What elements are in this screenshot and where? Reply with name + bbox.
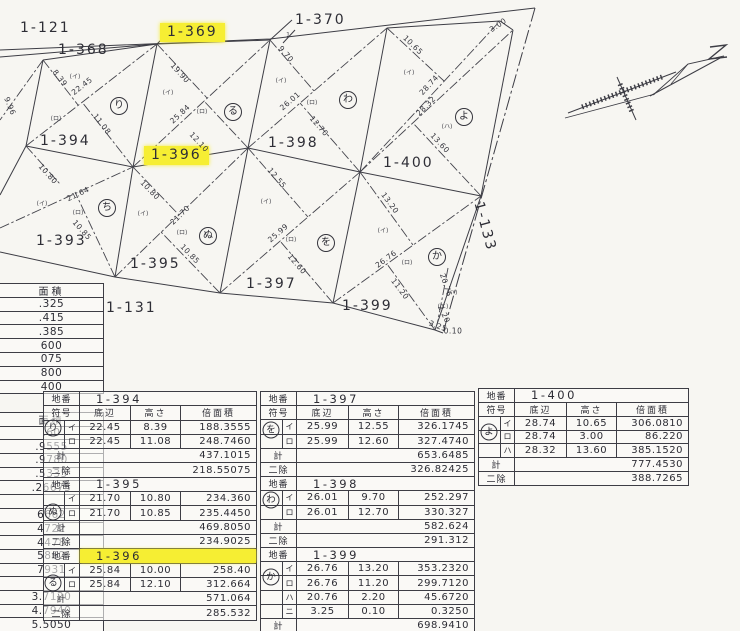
table-cell: ロ	[65, 506, 80, 519]
map-tri-mark: (ロ)	[286, 235, 297, 244]
table-cell: 3.00	[567, 431, 617, 444]
table-cell: 計	[44, 592, 80, 605]
table-parcel-symbol: か	[263, 569, 280, 586]
table-cell: 582.624	[297, 520, 474, 533]
area-table-fragment-1: 面積.325.415.385600075800400	[0, 283, 104, 394]
table-cell: 353.2320	[399, 562, 474, 575]
parcel-label: 1-370	[295, 12, 346, 28]
table-cell: 2.20	[349, 591, 399, 604]
table-row: 二除218.55075	[44, 463, 256, 477]
map-measurement: 9.70	[276, 44, 295, 64]
table-row: 符号底辺高さ倍面積	[479, 403, 688, 417]
table-cell	[261, 605, 283, 618]
parcel-label: 1-398	[268, 135, 319, 151]
map-measurement: 13.60	[429, 131, 452, 155]
table-row: 符号底辺高さ倍面積	[261, 406, 474, 420]
table-row: 地番1-395	[44, 478, 256, 492]
table-cell: 28.74	[515, 431, 567, 444]
table-cell: 地番	[261, 548, 297, 561]
parcel-label: 1-393	[36, 233, 87, 249]
table-cell: 299.7120	[399, 576, 474, 589]
map-measurement: 10.65	[401, 33, 425, 56]
table-cell: 285.532	[80, 606, 256, 619]
table-cell: 45.6720	[399, 591, 474, 604]
map-tri-mark: (イ)	[261, 197, 272, 206]
table-row: ロ25.9912.60327.4740	[261, 435, 474, 449]
parcel-label: 1-397	[246, 276, 297, 292]
map-measurement: 10.80	[138, 178, 161, 202]
map-measurement: 13.20	[379, 191, 400, 216]
table-parcel-symbol: わ	[263, 492, 280, 509]
fragment-value: .415	[0, 312, 103, 326]
table-row: 二除326.82425	[261, 463, 474, 477]
map-measurement: 26.01	[278, 90, 302, 113]
map-measurement: 11.08	[91, 112, 113, 136]
map-tri-mark: (ハ)	[447, 288, 458, 297]
table-row: 計437.1015	[44, 449, 256, 463]
table-cell: 28.74	[515, 417, 567, 430]
table-cell: 25.84	[80, 564, 131, 577]
map-tri-mark: 1	[286, 32, 290, 39]
table-cell: 地番	[44, 478, 80, 491]
table-cell: ロ	[501, 431, 515, 444]
table-cell: 1-397	[297, 392, 474, 405]
table-cell: 0.10	[349, 605, 399, 618]
map-parcel-symbol: よ	[455, 108, 473, 126]
table-cell: 高さ	[349, 406, 399, 419]
fragment-value: .385	[0, 325, 103, 339]
table-cell: ロ	[283, 576, 297, 589]
table-parcel-symbol: ぬ	[45, 504, 62, 521]
map-parcel-symbol: わ	[339, 91, 357, 109]
map-measurement: 3.00	[488, 16, 508, 34]
map-tri-mark: (ロ)	[51, 114, 62, 123]
map-tri-mark: (イ)	[70, 72, 81, 81]
measurement-table-2: 地番1-397符号底辺高さ倍面積イ25.9912.55326.1745ロ25.9…	[260, 391, 475, 631]
map-measurement: 25.84	[168, 103, 192, 126]
table-row: ロ25.8412.10312.664	[44, 578, 256, 592]
table-cell: 11.08	[131, 435, 181, 448]
table-cell: 25.99	[297, 420, 349, 433]
table-row: 地番1-398	[261, 477, 474, 491]
table-row: イ22.458.39188.3555	[44, 421, 256, 435]
table-cell: イ	[501, 417, 515, 430]
table-cell: 地番	[44, 392, 80, 405]
table-cell: 底辺	[297, 406, 349, 419]
table-cell: 25.84	[80, 578, 131, 591]
table-cell: 235.4450	[181, 506, 256, 519]
table-cell: 22.45	[80, 435, 131, 448]
table-cell: 底辺	[515, 403, 567, 416]
table-cell: 11.20	[349, 576, 399, 589]
map-tri-mark: (ロ)	[197, 107, 208, 116]
table-cell: 地番	[261, 392, 297, 405]
table-cell: 218.55075	[80, 463, 256, 476]
table-cell: 倍面積	[617, 403, 688, 416]
table-row: 二除388.7265	[479, 472, 688, 486]
map-measurement: 9.96	[2, 96, 17, 117]
table-cell: 二除	[261, 463, 297, 476]
table-cell: ハ	[283, 591, 297, 604]
map-measurement: 19.90	[169, 61, 192, 85]
table-cell: 二除	[44, 606, 80, 619]
table-cell: 306.0810	[617, 417, 688, 430]
table-cell: 20.76	[297, 591, 349, 604]
fragment-header: 面積	[0, 284, 103, 298]
table-cell: 13.20	[349, 562, 399, 575]
map-parcel-symbol: を	[317, 234, 335, 252]
map-tri-mark: (イ)	[163, 88, 174, 97]
table-cell: 底辺	[80, 406, 131, 419]
table-cell: 二除	[261, 534, 297, 547]
table-cell	[261, 591, 283, 604]
table-cell: 571.064	[80, 592, 256, 605]
table-cell: イ	[283, 562, 297, 575]
table-cell: 327.4740	[399, 435, 474, 448]
table-row: 計571.064	[44, 592, 256, 606]
table-cell: 9.70	[349, 491, 399, 504]
map-measurement: 0.10	[444, 327, 463, 336]
parcel-label: 1-395	[130, 256, 181, 272]
table-cell: 25.99	[297, 435, 349, 448]
table-row: 計653.6485	[261, 449, 474, 463]
map-measurement: 28.74	[418, 73, 441, 97]
table-cell: 10.00	[131, 564, 181, 577]
table-cell: 26.76	[297, 576, 349, 589]
table-parcel-symbol: り	[45, 420, 62, 437]
table-cell: 0.3250	[399, 605, 474, 618]
parcel-label: 1-400	[383, 155, 434, 171]
table-cell: 258.40	[181, 564, 256, 577]
table-row: 二除234.9025	[44, 535, 256, 549]
table-row: 地番1-400	[479, 389, 688, 403]
table-cell: 1-398	[297, 477, 474, 490]
scanned-survey-document: 1-1211-3681-3691-3701-3941-3961-3981-400…	[0, 0, 740, 631]
table-cell: 計	[479, 458, 515, 471]
table-cell: 12.70	[349, 506, 399, 519]
table-row: 符号底辺高さ倍面積	[44, 406, 256, 420]
table-cell: 高さ	[131, 406, 181, 419]
fragment-value: 800	[0, 367, 103, 381]
table-cell: 3.25	[297, 605, 349, 618]
table-row: 地番1-399	[261, 548, 474, 562]
table-cell: ロ	[283, 506, 297, 519]
table-cell: 高さ	[567, 403, 617, 416]
table-cell: 地番	[479, 389, 515, 402]
table-cell: 234.360	[181, 492, 256, 505]
table-cell: 777.4530	[515, 458, 688, 471]
table-row: 計698.9410	[261, 619, 474, 631]
table-cell: 13.60	[567, 444, 617, 457]
map-measurement: 21.70	[168, 203, 192, 226]
table-row: ロ26.7611.20299.7120	[261, 576, 474, 590]
table-cell: 二除	[44, 535, 80, 548]
table-cell: 330.327	[399, 506, 474, 519]
measurement-table-1: 地番1-394符号底辺高さ倍面積イ22.458.39188.3555ロ22.45…	[43, 391, 257, 621]
table-row: 二除291.312	[261, 534, 474, 548]
table-cell: 二除	[44, 463, 80, 476]
table-cell: 437.1015	[80, 449, 256, 462]
table-row: 地番1-397	[261, 392, 474, 406]
map-measurement: 21.64	[65, 185, 91, 203]
table-cell: 312.664	[181, 578, 256, 591]
map-measurement: 12.60	[286, 252, 309, 276]
map-parcel-symbol: る	[224, 103, 242, 121]
table-cell: 469.8050	[80, 521, 256, 534]
table-cell	[479, 444, 501, 457]
table-cell: 653.6485	[297, 449, 474, 462]
map-measurement: 8.39	[51, 68, 70, 88]
fragment-value: .325	[0, 298, 103, 312]
map-tri-mark: (イ)	[37, 199, 48, 208]
table-cell: 地番	[261, 477, 297, 490]
map-parcel-symbol: か	[428, 248, 446, 266]
table-cell: 21.70	[80, 492, 131, 505]
table-cell: ロ	[65, 578, 80, 591]
map-tri-mark: (ロ)	[177, 228, 188, 237]
parcel-label: 1-369	[160, 23, 225, 42]
table-cell: イ	[65, 564, 80, 577]
map-tri-mark: (ロ)	[307, 98, 318, 107]
table-cell: 10.85	[131, 506, 181, 519]
table-cell: 符号	[479, 403, 515, 416]
table-row: イ26.7613.20353.2320	[261, 562, 474, 576]
table-row: ロ28.743.0086.220	[479, 431, 688, 445]
table-cell: 86.220	[617, 431, 688, 444]
table-row: イ25.8410.00258.40	[44, 564, 256, 578]
table-cell: 326.82425	[297, 463, 474, 476]
map-tri-mark: (ニ)	[438, 302, 449, 311]
table-cell: 8.39	[131, 421, 181, 434]
map-measurement: 12.55	[266, 166, 288, 190]
parcel-label: 1-121	[20, 20, 71, 36]
table-cell: 385.1520	[617, 444, 688, 457]
table-cell: 12.55	[349, 420, 399, 433]
table-cell: 1-395	[80, 478, 256, 491]
table-cell	[44, 435, 65, 448]
parcel-label: 1-368	[58, 42, 109, 58]
table-row: イ26.019.70252.297	[261, 491, 474, 505]
table-cell: 698.9410	[297, 619, 474, 631]
fragment-value: 075	[0, 353, 103, 367]
table-cell: ロ	[283, 435, 297, 448]
map-measurement: 26.76	[374, 248, 399, 269]
table-row: 地番1-396	[44, 549, 256, 563]
table-row: 計777.4530	[479, 458, 688, 472]
table-cell: 10.65	[567, 417, 617, 430]
map-tri-mark: (ロ)	[73, 208, 84, 217]
table-cell: 符号	[261, 406, 297, 419]
measurement-table-3: 地番1-400符号底辺高さ倍面積イ28.7410.65306.0810ロ28.7…	[478, 388, 689, 486]
table-cell: 388.7265	[515, 472, 688, 485]
table-cell: イ	[65, 421, 80, 434]
table-cell: 倍面積	[399, 406, 474, 419]
table-cell: 倍面積	[181, 406, 256, 419]
table-cell: 1-396	[80, 549, 256, 562]
map-tri-mark: (イ)	[378, 226, 389, 235]
map-measurement: 28.32	[414, 94, 437, 117]
table-row: ハ20.762.2045.6720	[261, 591, 474, 605]
map-parcel-symbol: ぬ	[199, 227, 217, 245]
table-row: ロ21.7010.85235.4450	[44, 506, 256, 520]
table-cell: 地番	[44, 549, 80, 562]
table-row: ハ28.3213.60385.1520	[479, 444, 688, 458]
parcel-label: 1-394	[40, 133, 91, 149]
table-cell: 12.10	[131, 578, 181, 591]
map-tri-mark: (イ)	[138, 209, 149, 218]
table-row: 計469.8050	[44, 521, 256, 535]
table-parcel-symbol: よ	[481, 424, 498, 441]
table-cell: イ	[65, 492, 80, 505]
table-row: ロ26.0112.70330.327	[261, 506, 474, 520]
table-cell: 1-399	[297, 548, 474, 561]
table-cell: イ	[283, 491, 297, 504]
table-cell: 1-394	[80, 392, 256, 405]
table-row: ニ3.250.100.3250	[261, 605, 474, 619]
parcel-label: 1-131	[106, 300, 157, 316]
table-cell: 326.1745	[399, 420, 474, 433]
table-cell: 26.01	[297, 506, 349, 519]
parcel-label: 1-133	[471, 200, 500, 253]
table-cell: 1-400	[515, 389, 688, 402]
map-tri-mark: (イ)	[404, 68, 415, 77]
table-cell: 二除	[479, 472, 515, 485]
table-cell: 10.80	[131, 492, 181, 505]
map-parcel-symbol: り	[110, 97, 128, 115]
table-cell: 符号	[44, 406, 80, 419]
table-row: イ28.7410.65306.0810	[479, 417, 688, 431]
parcel-label: 1-399	[342, 298, 393, 314]
table-cell: 234.9025	[80, 535, 256, 548]
table-row: イ21.7010.80234.360	[44, 492, 256, 506]
table-cell: 26.01	[297, 491, 349, 504]
map-tri-mark: (イ)	[276, 76, 287, 85]
fragment-value: 600	[0, 339, 103, 353]
table-cell: 26.76	[297, 562, 349, 575]
table-cell: 188.3555	[181, 421, 256, 434]
table-row: ロ22.4511.08248.7460	[44, 435, 256, 449]
table-cell: ロ	[65, 435, 80, 448]
map-tri-mark: (ハ)	[442, 122, 453, 131]
table-cell: ニ	[283, 605, 297, 618]
map-measurement: 10.85	[178, 242, 201, 266]
table-cell: 252.297	[399, 491, 474, 504]
table-cell: イ	[283, 420, 297, 433]
table-cell: 12.60	[349, 435, 399, 448]
table-parcel-symbol: を	[263, 422, 280, 439]
table-cell: 計	[44, 449, 80, 462]
table-cell: 22.45	[80, 421, 131, 434]
table-cell: 291.312	[297, 534, 474, 547]
table-row: 計582.624	[261, 520, 474, 534]
map-parcel-symbol: ち	[98, 199, 116, 217]
table-cell: 計	[261, 619, 297, 631]
map-measurement: 10.80	[37, 162, 60, 186]
table-cell: 計	[261, 449, 297, 462]
table-cell: 計	[44, 521, 80, 534]
table-cell: 248.7460	[181, 435, 256, 448]
table-cell: ハ	[501, 444, 515, 457]
table-cell: 計	[261, 520, 297, 533]
map-tri-mark: (ロ)	[402, 258, 413, 267]
table-cell: 28.32	[515, 444, 567, 457]
table-cell: 21.70	[80, 506, 131, 519]
table-row: 二除285.532	[44, 606, 256, 620]
table-parcel-symbol: る	[45, 575, 62, 592]
table-row: イ25.9912.55326.1745	[261, 420, 474, 434]
table-row: 地番1-394	[44, 392, 256, 406]
